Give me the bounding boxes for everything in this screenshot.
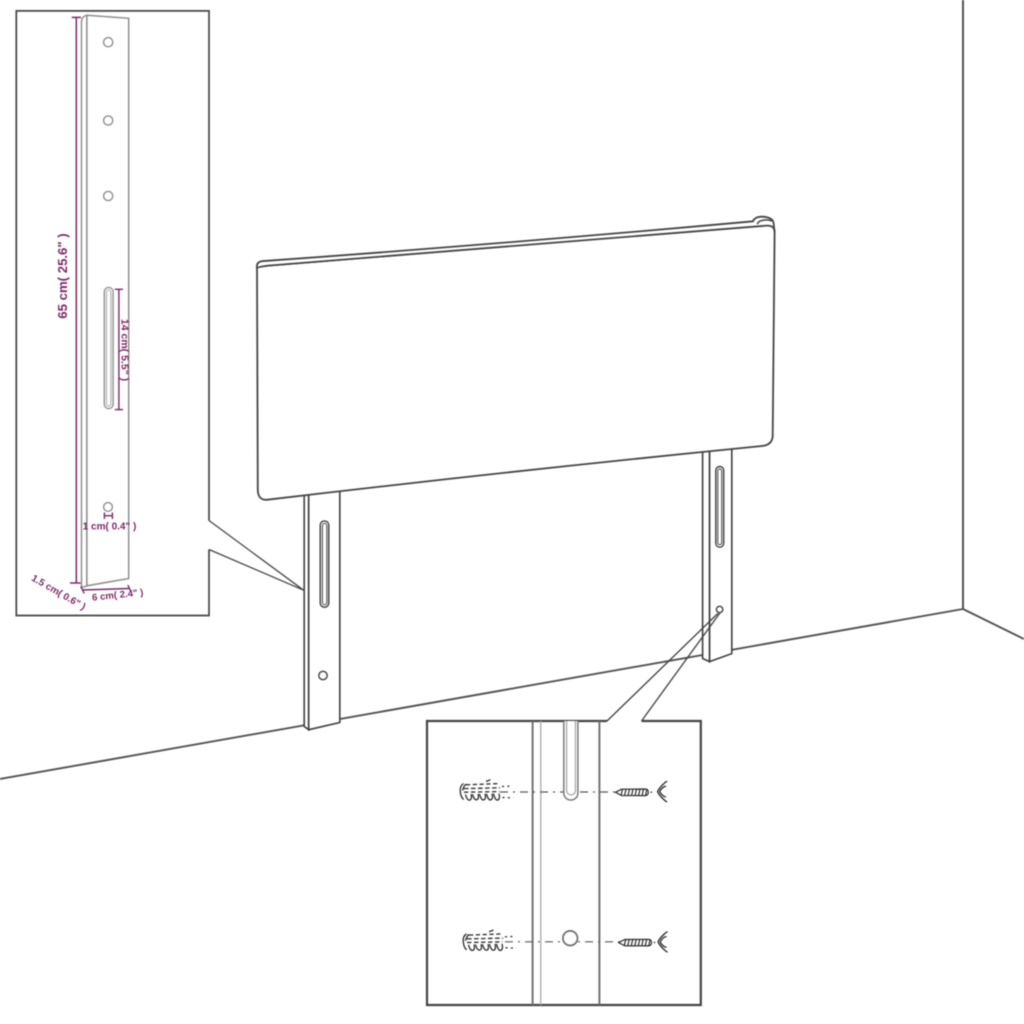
svg-text:14 cm( 5.5" ): 14 cm( 5.5" ) [119, 319, 131, 381]
svg-text:65 cm( 25.6" ): 65 cm( 25.6" ) [55, 233, 70, 318]
svg-text:1 cm( 0.4" ): 1 cm( 0.4" ) [83, 522, 137, 533]
